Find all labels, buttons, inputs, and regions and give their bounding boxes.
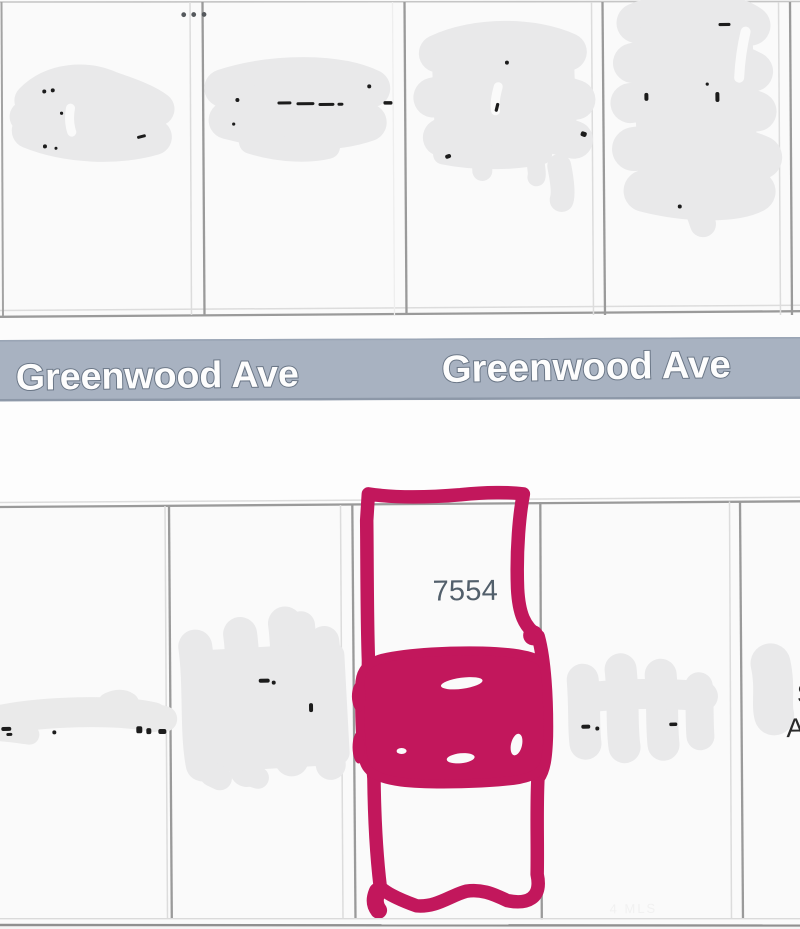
svg-text:Greenwood Ave: Greenwood Ave [441,344,731,391]
svg-text:4 MLS: 4 MLS [610,901,658,917]
svg-text:Greenwood Ave: Greenwood Ave [16,353,299,398]
svg-text:A: A [786,713,800,743]
svg-text:7554: 7554 [432,575,498,608]
